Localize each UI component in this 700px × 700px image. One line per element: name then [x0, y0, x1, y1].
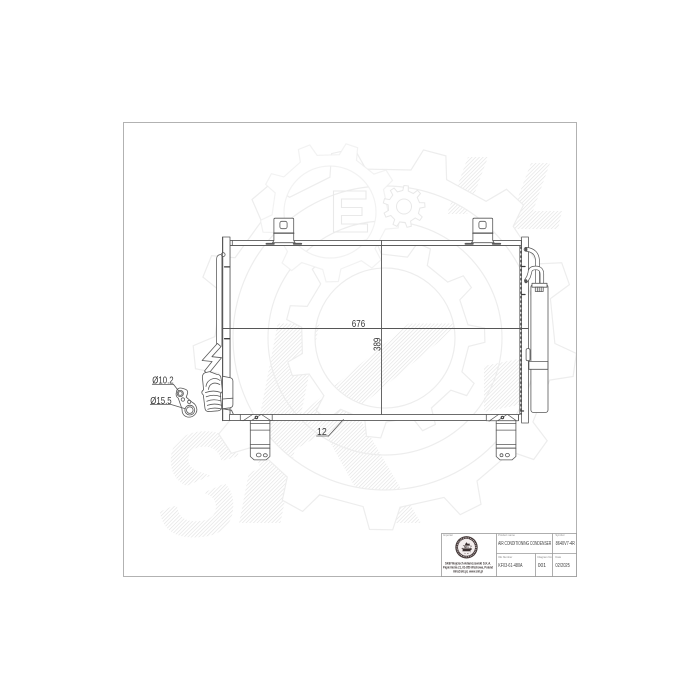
svg-text:02/2025: 02/2025 — [555, 563, 570, 569]
svg-text:Diagram No.: Diagram No. — [538, 555, 553, 559]
svg-text:info@skl.pl, www.skl.pl: info@skl.pl, www.skl.pl — [453, 569, 483, 573]
svg-text:SKL: SKL — [464, 545, 470, 549]
svg-text:KF03-61-480A: KF03-61-480A — [498, 563, 523, 569]
svg-text:001: 001 — [538, 563, 547, 569]
svg-text:8640V7-4R: 8640V7-4R — [556, 541, 576, 547]
svg-text:OE Number: OE Number — [498, 555, 512, 559]
svg-text:Ø15.5: Ø15.5 — [150, 396, 172, 407]
svg-text:AIR CONDITIONING CONDENSER: AIR CONDITIONING CONDENSER — [498, 541, 551, 547]
svg-text:389: 389 — [373, 337, 384, 351]
svg-text:Date: Date — [555, 555, 561, 559]
svg-text:Product name: Product name — [498, 533, 515, 537]
svg-text:Symbol: Symbol — [555, 533, 564, 537]
svg-text:Importer: Importer — [443, 533, 453, 537]
svg-text:676: 676 — [352, 319, 366, 330]
svg-text:Ø10.2: Ø10.2 — [152, 376, 174, 387]
